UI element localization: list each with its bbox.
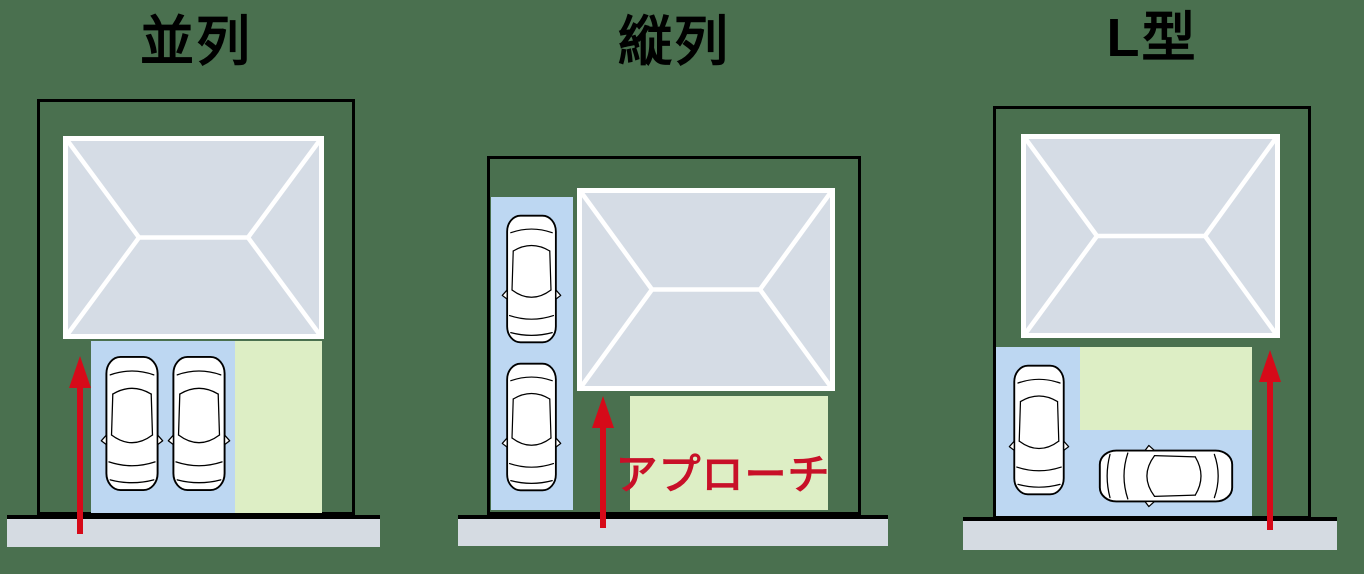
entry-up-arrow-icon (67, 356, 93, 534)
panel-side-by-side: 並列 (0, 0, 455, 574)
road-sidewalk (7, 515, 380, 547)
road-sidewalk (458, 515, 888, 546)
car-top-view-icon (167, 353, 231, 494)
car-top-view-icon (100, 353, 164, 494)
hip-roof-icon (63, 136, 324, 339)
approach-label: アプローチ (608, 452, 838, 498)
panel-l-shape: L型 (910, 0, 1364, 574)
entry-up-arrow-icon (1257, 350, 1283, 530)
car-top-view-icon (501, 212, 562, 346)
panel-title: 縦列 (487, 12, 861, 72)
car-top-view-icon (501, 360, 562, 494)
hip-roof-icon (1021, 134, 1280, 338)
parking-layout-diagram: 並列 縦列 アプローチ (0, 0, 1364, 574)
hip-roof-icon (577, 188, 835, 391)
panel-title: 並列 (37, 12, 355, 72)
approach-area (1080, 347, 1252, 430)
car-top-view-horizontal-icon (1096, 444, 1236, 508)
approach-area (235, 341, 322, 513)
car-top-view-icon (1008, 362, 1070, 498)
panel-title: L型 (993, 8, 1311, 68)
panel-tandem: 縦列 アプローチ (455, 0, 910, 574)
